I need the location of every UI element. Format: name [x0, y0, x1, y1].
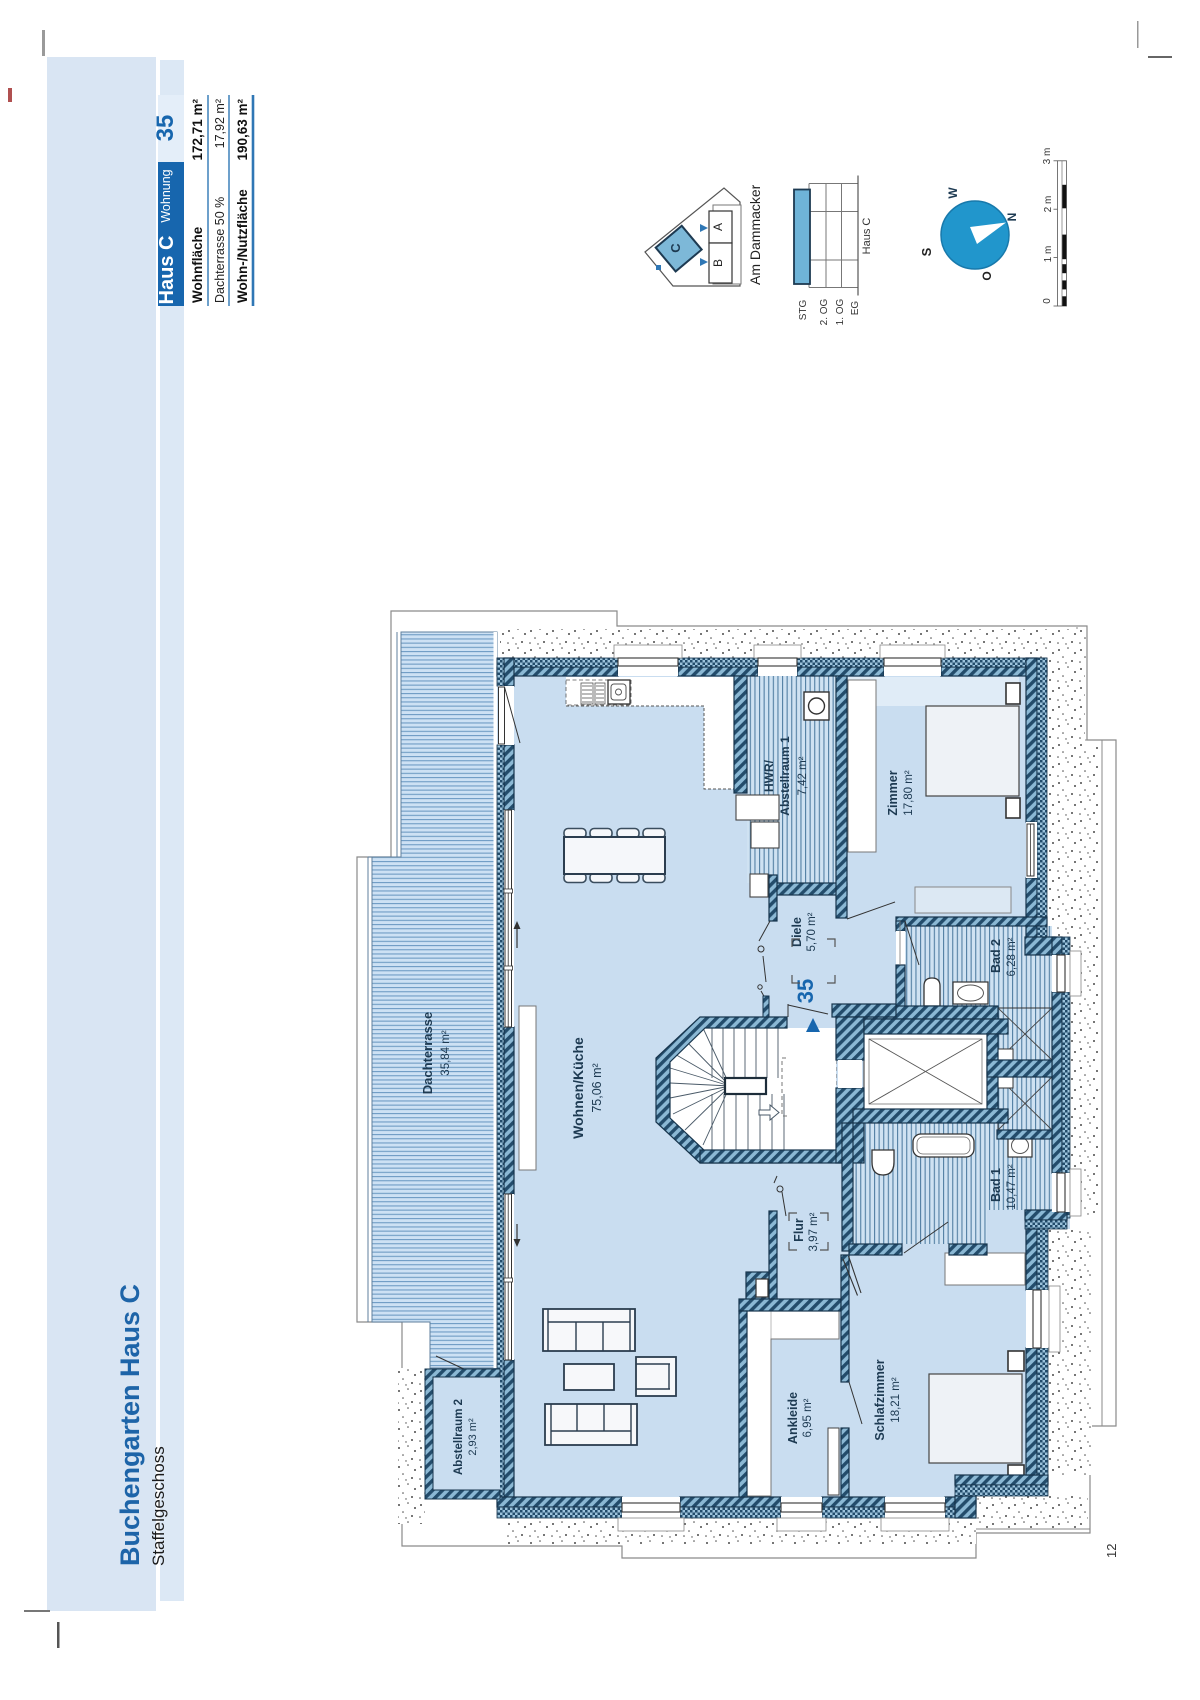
svg-text:Am Dammacker: Am Dammacker: [747, 184, 763, 285]
svg-text:35: 35: [152, 115, 179, 142]
svg-text:O: O: [980, 271, 994, 280]
svg-text:17,80 m²: 17,80 m²: [903, 770, 915, 816]
svg-text:6,95 m²: 6,95 m²: [802, 1398, 814, 1437]
svg-text:STG: STG: [798, 300, 809, 321]
svg-text:A: A: [711, 223, 725, 231]
svg-text:Haus C: Haus C: [156, 236, 178, 305]
svg-text:Dachterrasse: Dachterrasse: [420, 1012, 435, 1094]
svg-text:2. OG: 2. OG: [819, 298, 830, 325]
svg-text:Bad 2: Bad 2: [989, 939, 1003, 973]
svg-text:S: S: [919, 247, 934, 256]
svg-text:Abstellraum 2: Abstellraum 2: [453, 1399, 465, 1475]
svg-text:Schlafzimmer: Schlafzimmer: [873, 1359, 887, 1440]
svg-text:Haus C: Haus C: [861, 218, 873, 255]
svg-text:5,70 m²: 5,70 m²: [806, 912, 818, 951]
svg-text:C: C: [668, 243, 683, 253]
svg-text:0: 0: [1042, 298, 1053, 304]
svg-text:B: B: [711, 259, 725, 267]
svg-text:1. OG: 1. OG: [835, 298, 846, 325]
svg-text:12: 12: [1104, 1544, 1119, 1558]
svg-text:Buchengarten Haus C: Buchengarten Haus C: [115, 1284, 145, 1566]
svg-text:W: W: [946, 187, 960, 199]
svg-text:75,06 m²: 75,06 m²: [590, 1063, 604, 1112]
svg-text:Wohnfläche: Wohnfläche: [190, 226, 205, 303]
svg-text:172,71 m²: 172,71 m²: [190, 99, 205, 161]
svg-text:2 m: 2 m: [1043, 196, 1054, 213]
svg-text:Wohn-/Nutzfläche: Wohn-/Nutzfläche: [235, 189, 250, 303]
svg-text:10,47 m²: 10,47 m²: [1006, 1164, 1018, 1210]
svg-text:3 m: 3 m: [1042, 148, 1053, 165]
svg-text:35,84 m²: 35,84 m²: [440, 1030, 452, 1076]
svg-text:Ankleide: Ankleide: [786, 1392, 800, 1444]
svg-text:1 m: 1 m: [1043, 246, 1054, 263]
svg-text:Wohnen/Küche: Wohnen/Küche: [570, 1037, 586, 1139]
svg-text:HWR/: HWR/: [762, 759, 776, 792]
svg-text:Abstellraum 1: Abstellraum 1: [778, 736, 792, 816]
svg-text:17,92 m²: 17,92 m²: [213, 99, 227, 148]
svg-text:18,21 m²: 18,21 m²: [890, 1377, 902, 1423]
svg-text:Bad 1: Bad 1: [989, 1168, 1003, 1202]
svg-text:7,42 m²: 7,42 m²: [797, 756, 809, 795]
svg-text:Wohnung: Wohnung: [159, 169, 173, 222]
svg-text:2,93 m²: 2,93 m²: [467, 1418, 479, 1456]
svg-text:Flur: Flur: [792, 1218, 806, 1242]
svg-text:3,97 m²: 3,97 m²: [808, 1212, 820, 1251]
svg-text:EG: EG: [850, 301, 861, 316]
svg-text:6,28 m²: 6,28 m²: [1006, 937, 1018, 976]
svg-text:190,63 m²: 190,63 m²: [235, 99, 250, 161]
svg-text:N: N: [1005, 213, 1019, 222]
svg-text:Dachterrasse 50 %: Dachterrasse 50 %: [213, 197, 227, 303]
svg-text:Staffelgeschoss: Staffelgeschoss: [149, 1446, 168, 1566]
svg-text:Zimmer: Zimmer: [886, 770, 900, 815]
